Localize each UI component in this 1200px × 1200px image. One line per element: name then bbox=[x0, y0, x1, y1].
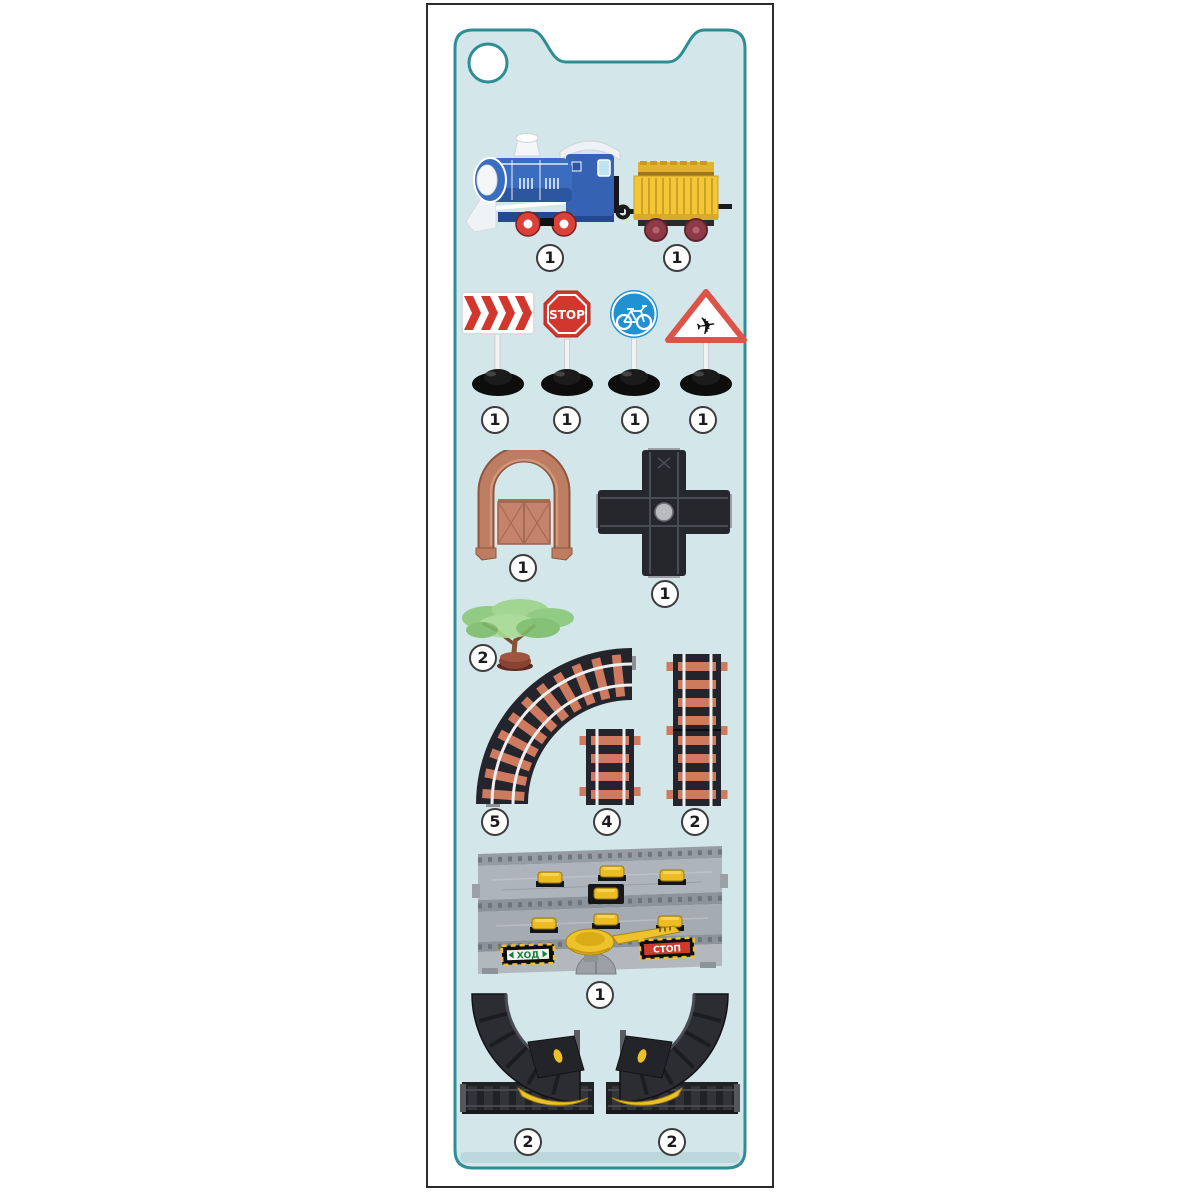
qty-badge-arch: 1 bbox=[509, 554, 537, 582]
qty-badge-ramp-right: 2 bbox=[658, 1128, 686, 1156]
qty-badge-locomotive: 1 bbox=[536, 244, 564, 272]
qty-badge-sign-chevron: 1 bbox=[481, 406, 509, 434]
stop-label-text: СТОП bbox=[653, 944, 681, 955]
qty-badge-sign-bicycle: 1 bbox=[621, 406, 649, 434]
stop-sign-text: STOP bbox=[549, 308, 585, 322]
hang-hole bbox=[469, 44, 507, 82]
locomotive-image bbox=[462, 126, 626, 242]
bicycle-sign bbox=[597, 288, 671, 404]
qty-badge-sign-stop: 1 bbox=[553, 406, 581, 434]
chevron-sign bbox=[458, 288, 538, 404]
product-image: STOP ✈ bbox=[0, 0, 1200, 1200]
wagon-image bbox=[612, 146, 738, 244]
loop-ramp-right bbox=[602, 986, 742, 1126]
cross-track bbox=[596, 448, 732, 578]
stop-sign: STOP bbox=[529, 288, 605, 404]
stop-label-plate: СТОП bbox=[640, 938, 695, 960]
qty-badge-long-straight: 2 bbox=[681, 808, 709, 836]
qty-badge-ramp-left: 2 bbox=[514, 1128, 542, 1156]
airplane-warning-sign: ✈ bbox=[664, 288, 748, 404]
railroad-crossing-platform: ХОД СТОП bbox=[472, 844, 728, 976]
arch-gate bbox=[472, 450, 576, 568]
loop-ramp-left bbox=[458, 986, 598, 1126]
go-label-text: ХОД bbox=[517, 951, 540, 962]
qty-badge-cross-track: 1 bbox=[651, 580, 679, 608]
short-straight-track bbox=[578, 726, 642, 808]
card-bottom-edge bbox=[460, 1152, 740, 1163]
qty-badge-short-straight: 4 bbox=[593, 808, 621, 836]
qty-badge-sign-airplane: 1 bbox=[689, 406, 717, 434]
go-label-plate: ХОД bbox=[502, 944, 555, 965]
qty-badge-tree: 2 bbox=[469, 644, 497, 672]
qty-badge-platform: 1 bbox=[586, 981, 614, 1009]
qty-badge-curved-track: 5 bbox=[481, 808, 509, 836]
qty-badge-wagon: 1 bbox=[663, 244, 691, 272]
long-straight-track bbox=[663, 651, 731, 809]
